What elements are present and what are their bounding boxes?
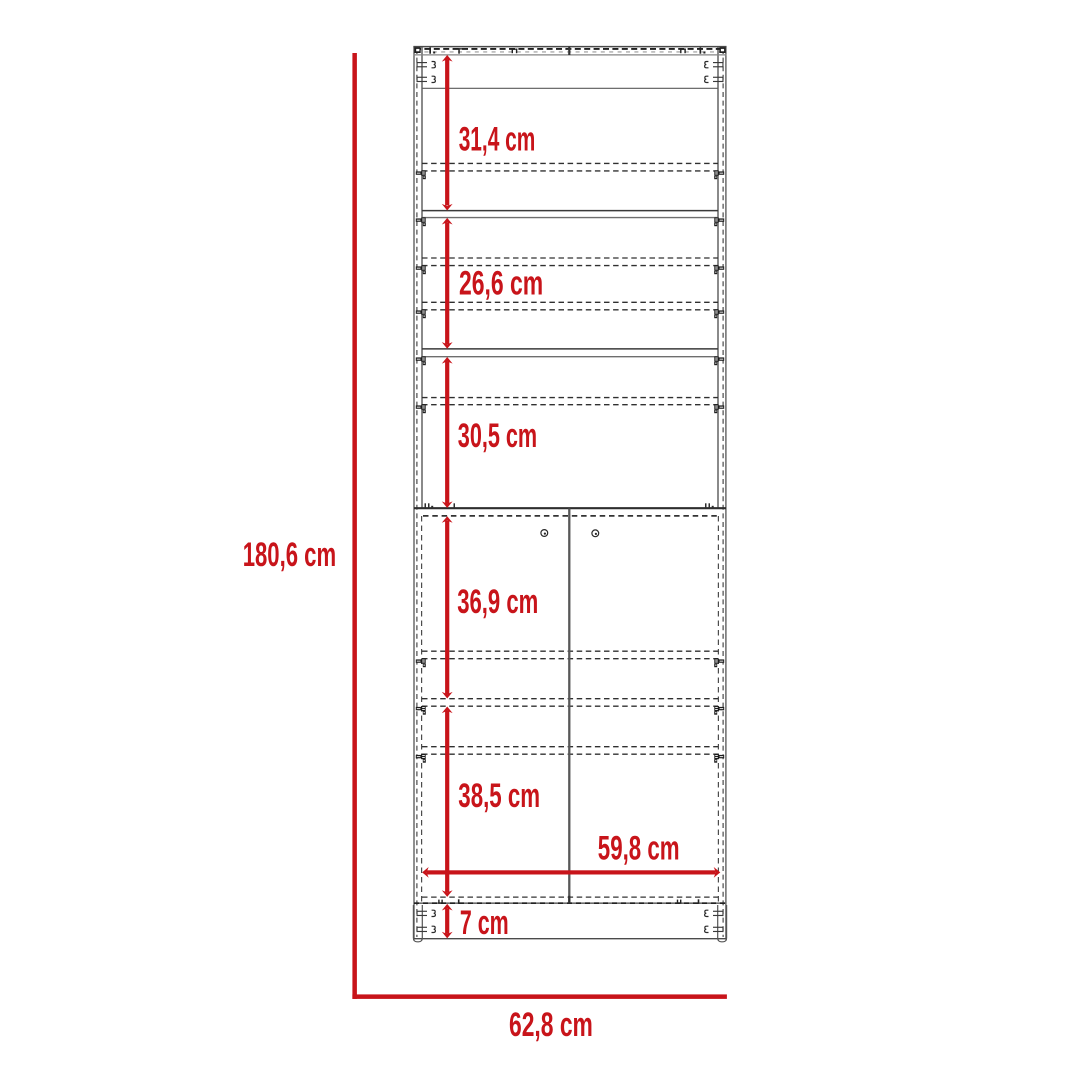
svg-text:7 cm: 7 cm <box>460 904 509 942</box>
svg-text:59,8 cm: 59,8 cm <box>598 830 680 868</box>
svg-text:31,4 cm: 31,4 cm <box>459 120 536 159</box>
svg-text:38,5 cm: 38,5 cm <box>458 777 540 815</box>
svg-text:36,9 cm: 36,9 cm <box>457 583 538 621</box>
svg-text:30,5 cm: 30,5 cm <box>458 417 537 455</box>
svg-text:62,8 cm: 62,8 cm <box>509 1006 593 1044</box>
svg-text:26,6 cm: 26,6 cm <box>459 264 543 303</box>
svg-text:180,6 cm: 180,6 cm <box>243 536 336 574</box>
